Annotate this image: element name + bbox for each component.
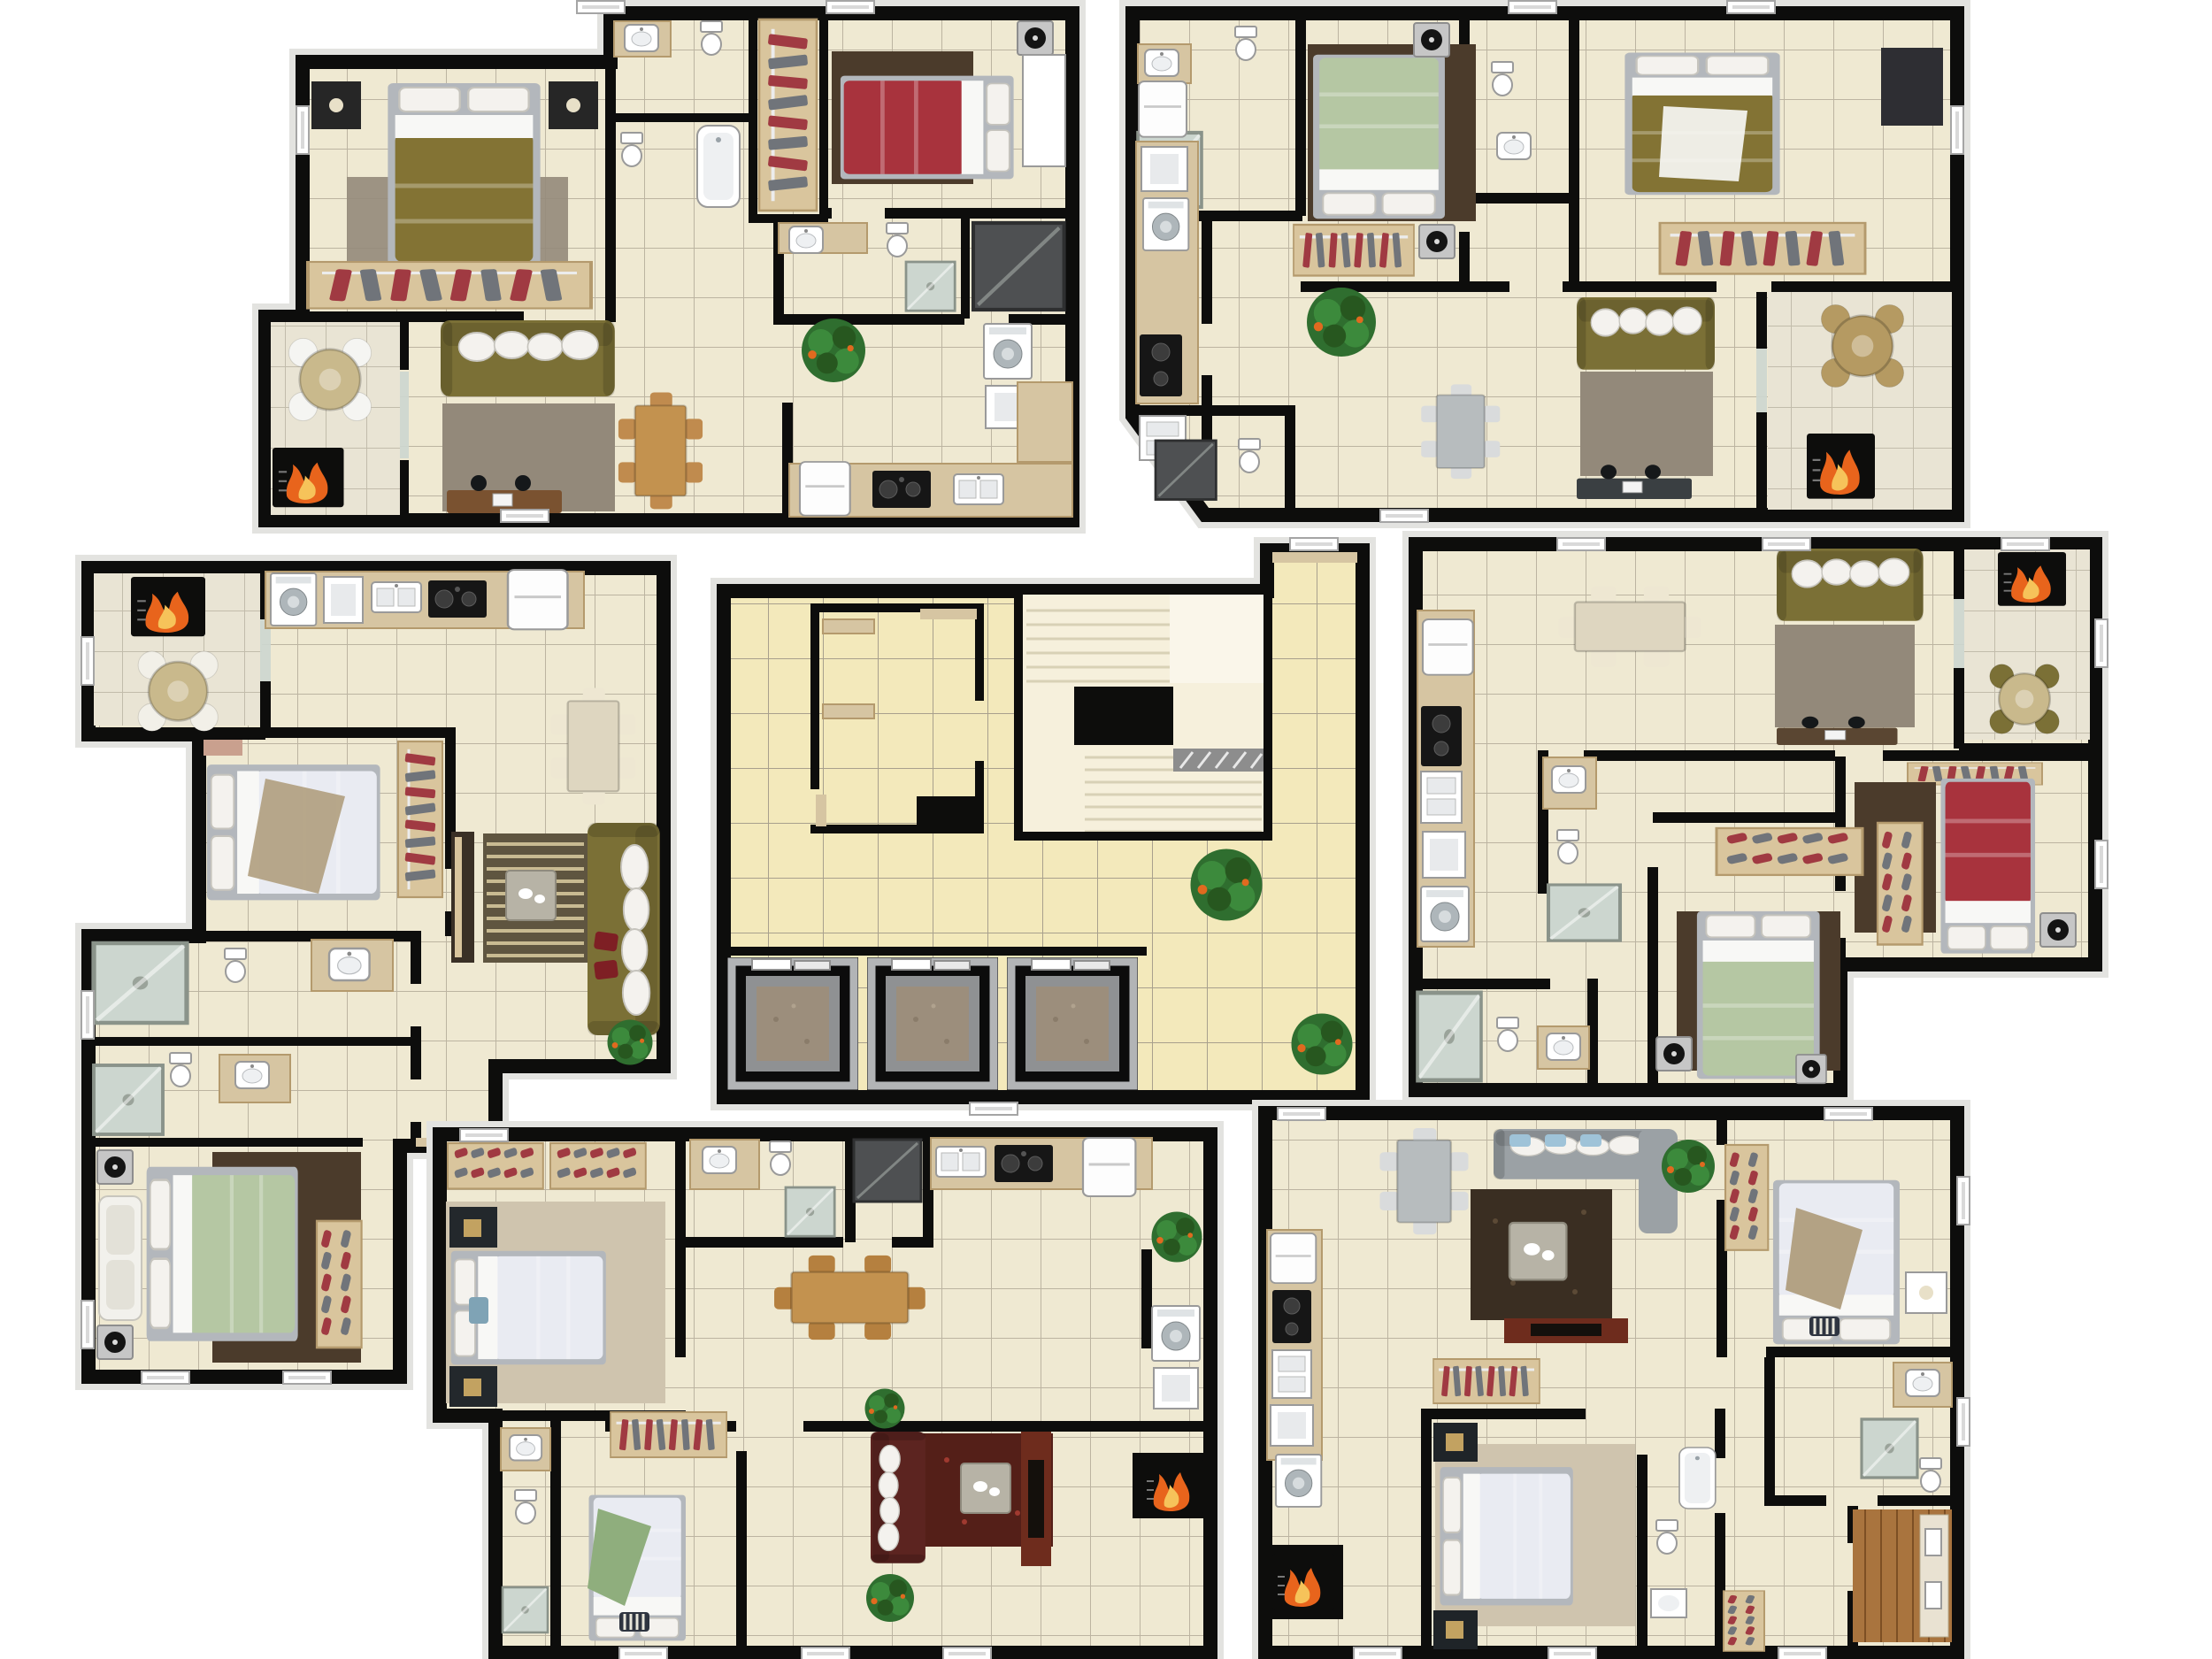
- shoe-rack: [1725, 1145, 1768, 1250]
- door-sill: [1509, 1, 1556, 13]
- red-pillow: [594, 931, 619, 951]
- speaker: [97, 1150, 133, 1184]
- washing-machine: [1152, 1306, 1200, 1361]
- door-sill: [1763, 538, 1810, 550]
- dark-closet: [973, 223, 1064, 310]
- double-bed: [388, 83, 540, 265]
- shoe-rack: [1724, 1591, 1764, 1651]
- wardrobe-rack: [308, 262, 591, 309]
- shower: [94, 1065, 163, 1134]
- shower: [503, 1587, 548, 1632]
- nightstand: [1433, 1423, 1478, 1462]
- refrigerator: [800, 462, 850, 516]
- bathroom-sink: [703, 1147, 736, 1173]
- tv-sideboard: [451, 832, 474, 963]
- kitchen-sink: [1421, 772, 1462, 823]
- bathroom-sink: [1651, 1589, 1686, 1617]
- barbecue-grill-fire: [273, 448, 344, 507]
- potted-plant: [1152, 1212, 1202, 1263]
- window-sill: [81, 991, 94, 1039]
- bathroom-sink: [1497, 133, 1531, 159]
- speaker: [1018, 21, 1053, 55]
- washing-machine: [1143, 198, 1188, 250]
- bathroom-sink: [789, 227, 823, 253]
- toilet: [621, 133, 642, 166]
- potted-plant: [608, 1020, 653, 1065]
- nightstand: [1433, 1610, 1478, 1649]
- kitchen-sink: [372, 582, 421, 612]
- door-sill: [1548, 1647, 1596, 1659]
- double-bed: [841, 76, 1014, 180]
- bathroom-sink: [1552, 766, 1586, 793]
- door-sill: [970, 1102, 1018, 1115]
- monitor: [1925, 1529, 1941, 1555]
- washing-machine: [271, 573, 316, 626]
- fireplace: [1265, 1545, 1343, 1619]
- elevator-wall: [724, 947, 1147, 956]
- walk-in-closet-rack: [759, 19, 817, 211]
- bathroom-sink: [510, 1435, 541, 1461]
- clothes-rack: [1660, 223, 1865, 274]
- cooktop: [872, 471, 931, 508]
- blue-pillow: [1545, 1134, 1566, 1147]
- potted-plant: [1307, 288, 1376, 357]
- rug: [1775, 625, 1915, 727]
- shelf: [823, 619, 874, 634]
- cooktop: [1421, 706, 1462, 766]
- speaker: [1796, 1055, 1826, 1083]
- shoe-cabinet: [448, 1143, 543, 1189]
- unit-bottom-right: [1265, 1108, 1970, 1659]
- shower: [906, 262, 955, 311]
- bathroom-sink: [1547, 1033, 1580, 1060]
- shower: [1862, 1419, 1917, 1478]
- laundry-tub: [1141, 147, 1187, 191]
- refrigerator: [1083, 1138, 1135, 1196]
- door-sill: [2001, 538, 2049, 550]
- window-sill: [296, 106, 309, 154]
- window-sill: [2095, 841, 2108, 888]
- shower-stall: [1156, 441, 1216, 500]
- nightstand: [549, 81, 598, 129]
- washing-machine: [1421, 887, 1469, 941]
- laundry-tub: [1271, 1405, 1313, 1446]
- blue-cushion: [469, 1297, 488, 1324]
- potted-plant: [1662, 1140, 1715, 1193]
- loveseat: [99, 1196, 142, 1320]
- window-sill: [2095, 619, 2108, 667]
- kitchen-sink: [954, 474, 1003, 504]
- refrigerator: [1271, 1233, 1316, 1283]
- shoe-cabinet: [550, 1143, 646, 1189]
- speaker: [1414, 23, 1449, 57]
- coffee-table: [1509, 1223, 1566, 1279]
- potted-plant: [1292, 1014, 1353, 1075]
- door-sill: [1824, 1108, 1872, 1120]
- speaker: [2040, 913, 2076, 947]
- monitor: [1925, 1582, 1941, 1609]
- kitchen-counter: [1018, 382, 1072, 462]
- balcony-glass-door: [1954, 599, 1964, 668]
- balcony-glass-door: [400, 372, 409, 458]
- shower: [94, 943, 187, 1023]
- refrigerator: [1423, 619, 1473, 675]
- unit-top-right: [1133, 1, 1963, 522]
- fireplace: [1133, 1453, 1210, 1518]
- shelf: [823, 704, 874, 718]
- kitchen-sink: [936, 1147, 986, 1177]
- double-bed: [1940, 779, 2035, 954]
- round-patio-table: [1990, 664, 2059, 733]
- washing-machine: [1276, 1455, 1321, 1507]
- barbecue-grill-fire: [1998, 552, 2066, 606]
- white-armoire: [1023, 55, 1065, 166]
- clothes-rack: [398, 741, 442, 897]
- toilet: [1557, 830, 1578, 864]
- window-sill: [81, 1301, 94, 1348]
- door-sill: [1557, 538, 1605, 550]
- toilet: [515, 1490, 536, 1524]
- sofa: [441, 320, 615, 396]
- toilet: [887, 223, 908, 257]
- refrigerator: [1139, 81, 1187, 137]
- washing-machine: [984, 324, 1032, 379]
- blue-pillow: [1509, 1134, 1531, 1147]
- door-sill: [1727, 1, 1775, 13]
- refrigerator: [508, 570, 568, 629]
- cooktop: [1140, 334, 1182, 396]
- round-patio-table: [288, 338, 371, 420]
- potted-plant: [865, 1389, 905, 1429]
- unit-bottom-middle: [440, 1129, 1210, 1659]
- white-blanket: [1659, 106, 1747, 181]
- double-bed: [147, 1167, 298, 1341]
- bathroom-sink: [1145, 50, 1179, 76]
- toilet: [170, 1053, 191, 1087]
- unit-top-left: [265, 1, 1072, 522]
- stair-railing: [1173, 749, 1263, 772]
- cooktop: [428, 580, 487, 618]
- speaker: [97, 1325, 133, 1359]
- window-sill: [1957, 1177, 1970, 1225]
- barbecue-grill-fire: [131, 577, 205, 636]
- staircase: [1014, 588, 1272, 841]
- door-sill: [1354, 1647, 1402, 1659]
- tv-cabinet: [1504, 1318, 1628, 1343]
- toilet: [1492, 62, 1513, 96]
- double-bed: [1440, 1467, 1572, 1605]
- shoe-rack: [317, 1221, 362, 1348]
- threshold: [920, 609, 977, 619]
- bathroom-sink: [1906, 1370, 1939, 1396]
- window-sill: [1957, 1398, 1970, 1446]
- potted-plant: [1191, 849, 1263, 921]
- shower-stall: [854, 1140, 921, 1202]
- elevator: [1007, 957, 1138, 1090]
- shower: [786, 1187, 834, 1236]
- cooktop: [995, 1145, 1053, 1182]
- toilet: [1656, 1520, 1678, 1554]
- door-sill: [943, 1647, 991, 1659]
- door-sill: [283, 1371, 331, 1384]
- laundry-tub: [1423, 832, 1465, 878]
- wicker-round-table: [1821, 304, 1903, 387]
- round-patio-table: [138, 651, 218, 731]
- home-office: [1853, 1509, 1952, 1642]
- toilet: [1235, 27, 1256, 60]
- sofa: [871, 1432, 926, 1563]
- coffee-table: [506, 871, 556, 920]
- clothes-rack: [1294, 225, 1414, 276]
- double-bed: [1697, 911, 1820, 1079]
- potted-plant: [866, 1574, 914, 1622]
- dark-dresser: [1881, 48, 1943, 126]
- toilet: [1497, 1018, 1518, 1051]
- elevator: [727, 957, 858, 1090]
- window-sill: [1951, 106, 1963, 154]
- door-sill: [142, 1371, 189, 1384]
- threshold: [1272, 552, 1357, 563]
- toilet: [770, 1141, 791, 1175]
- clothes-rack: [1433, 1359, 1540, 1403]
- potted-plant: [802, 319, 865, 382]
- door-sill: [577, 1, 625, 13]
- nightstand: [449, 1366, 497, 1407]
- blue-pillow: [1580, 1134, 1601, 1147]
- elevator: [867, 957, 998, 1090]
- tv-cabinet: [1021, 1432, 1051, 1566]
- door-sill: [619, 1647, 667, 1659]
- red-pillow: [594, 959, 618, 979]
- nightstand: [1906, 1272, 1947, 1313]
- laundry-tub: [324, 577, 363, 623]
- bathtub: [1679, 1448, 1716, 1509]
- shelf: [204, 740, 242, 756]
- double-bed: [1313, 55, 1445, 219]
- door-sill: [1278, 1108, 1325, 1120]
- speaker: [1656, 1037, 1692, 1071]
- laundry-tub: [1154, 1368, 1198, 1409]
- window-sill: [81, 637, 94, 685]
- door-sill: [1380, 510, 1428, 522]
- nightstand: [311, 81, 361, 129]
- toilet: [225, 949, 246, 982]
- kitchen-sink: [1272, 1350, 1311, 1398]
- threshold: [816, 795, 826, 826]
- clothes-rack: [611, 1412, 726, 1457]
- door-sill: [802, 1647, 849, 1659]
- shoe-shelf: [1717, 828, 1863, 875]
- sofa: [1577, 297, 1715, 370]
- bathroom-sink: [235, 1062, 269, 1088]
- striped-pillow: [619, 1612, 649, 1632]
- door-sill: [501, 510, 549, 522]
- bathtub: [697, 126, 740, 207]
- shower: [1417, 993, 1481, 1080]
- common-core: [724, 538, 1363, 1115]
- wine-rack: [1878, 823, 1923, 945]
- nightstand: [449, 1207, 497, 1248]
- bathroom-sink: [329, 949, 370, 980]
- striped-pillow: [1809, 1317, 1839, 1336]
- shower: [1548, 885, 1620, 941]
- toilet: [1239, 439, 1260, 472]
- sofa: [588, 823, 660, 1035]
- rug: [1580, 372, 1713, 476]
- door-sill: [826, 1, 874, 13]
- toilet: [701, 21, 722, 55]
- door-sill: [1290, 538, 1338, 550]
- door-sill: [1778, 1647, 1826, 1659]
- door-sill: [460, 1129, 508, 1141]
- barbecue-grill-fire: [1807, 434, 1875, 499]
- cooktop: [1272, 1290, 1311, 1343]
- unit-middle-right: [1416, 538, 2108, 1090]
- coffee-table: [961, 1463, 1010, 1513]
- toilet: [1920, 1458, 1941, 1492]
- bathroom-sink: [625, 25, 658, 51]
- sofa: [1777, 549, 1924, 621]
- speaker: [1419, 225, 1455, 258]
- floor-plan-canvas: [0, 0, 2212, 1659]
- balcony-glass-door: [1756, 349, 1767, 412]
